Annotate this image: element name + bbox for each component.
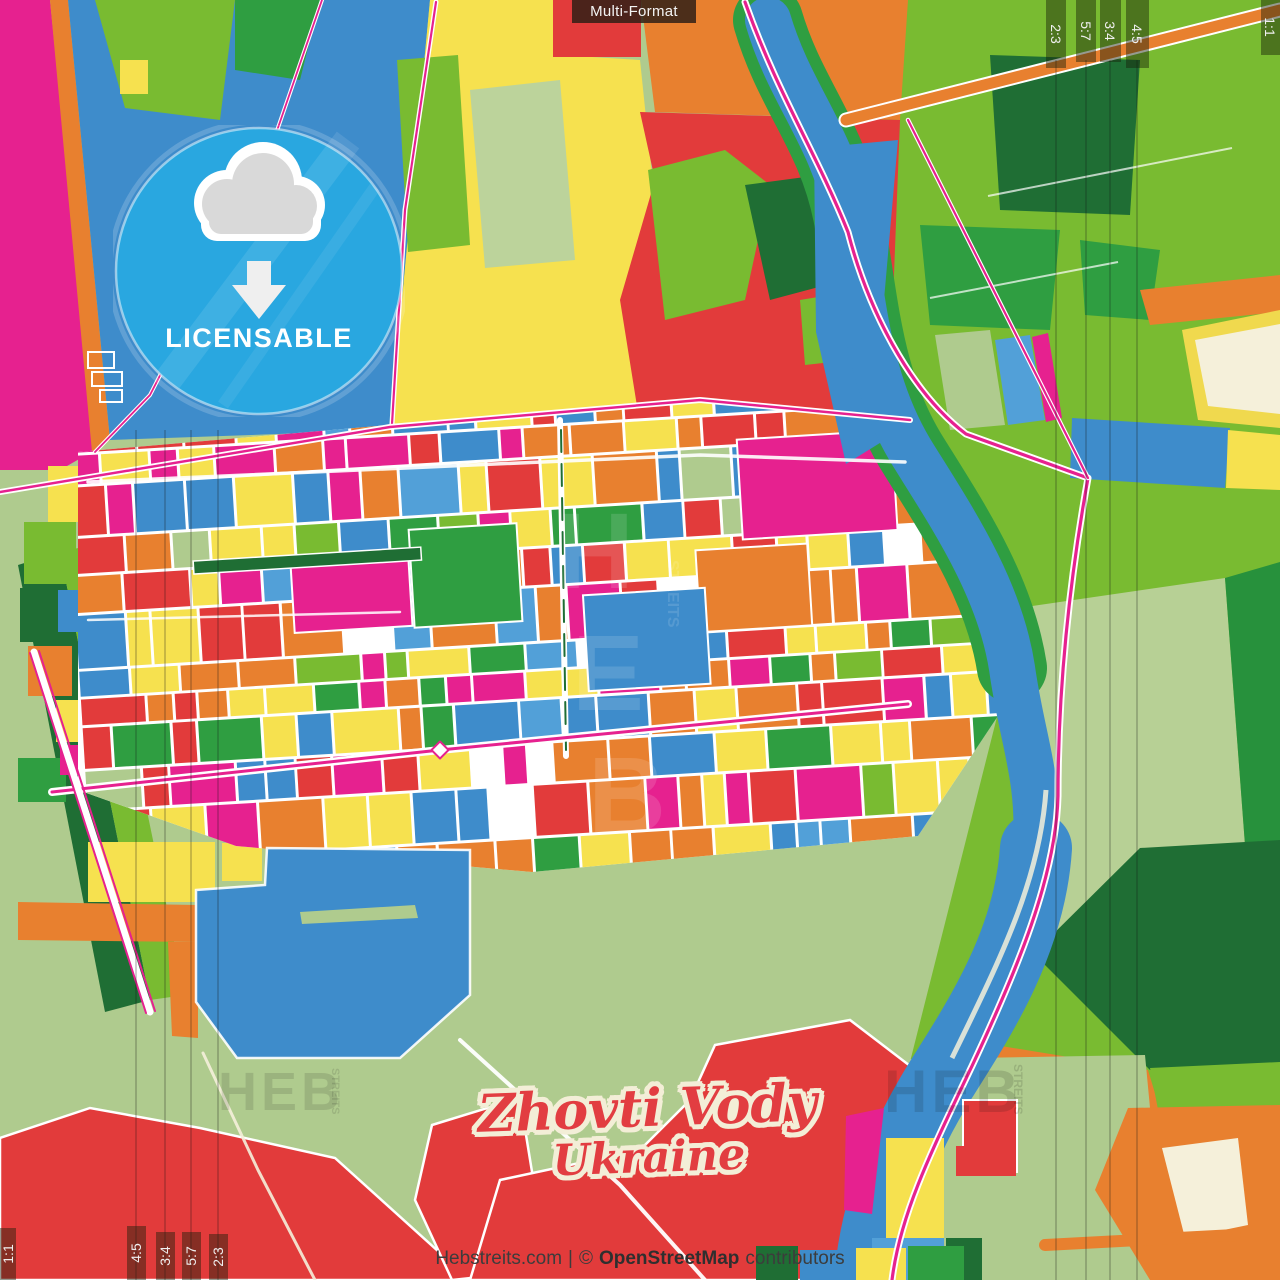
map-parcel [730, 658, 770, 686]
map-parcel [836, 651, 882, 679]
map-parcel [347, 436, 409, 468]
map-parcel [175, 693, 197, 720]
map-title: Zhovti Vody Ukraine [386, 1073, 909, 1190]
map-parcel [862, 764, 894, 816]
map-parcel [787, 627, 816, 654]
map-parcel [239, 659, 295, 687]
map-parcel [360, 681, 385, 708]
map-parcel [811, 654, 834, 681]
map-parcel [526, 670, 563, 698]
map-parcel [259, 799, 324, 853]
map-parcel [386, 652, 407, 678]
map-parcel [76, 613, 127, 669]
map-parcel [798, 683, 822, 725]
format-chip: Multi-Format [572, 0, 696, 23]
map-parcel [147, 694, 173, 721]
map-parcel [679, 776, 703, 827]
map-parcel [73, 574, 122, 613]
map-parcel [883, 647, 942, 676]
map-parcel [298, 713, 333, 756]
format-chip-label: Multi-Format [590, 3, 678, 20]
map-parcel [457, 789, 489, 841]
attribution-footer: Hebstreits.com | © OpenStreetMap contrib… [0, 1248, 1280, 1270]
map-parcel [324, 796, 369, 849]
watermark-letter: E [572, 612, 644, 733]
map-parcel [329, 470, 361, 520]
licensable-badge: LICENSABLE [113, 125, 405, 417]
map-parcel [891, 620, 930, 647]
map-parcel [107, 484, 134, 534]
map-parcel [199, 606, 243, 661]
map-parcel [823, 680, 883, 724]
map-parcel [534, 783, 590, 836]
map-parcel [728, 629, 785, 657]
map-parcel [131, 666, 179, 694]
watermark-letter: B [588, 734, 666, 855]
map-parcel [361, 468, 399, 518]
map-parcel [884, 677, 925, 720]
map-parcel [123, 570, 190, 610]
map-poster: HEB STREITS HEB STREITS HEBSTREITS 2:3 5… [0, 0, 1280, 1280]
map-parcel [243, 604, 282, 659]
map-parcel [324, 439, 345, 469]
map-parcel [625, 419, 677, 451]
map-parcel [460, 462, 488, 512]
map-parcel [198, 717, 262, 761]
map-parcel [198, 691, 227, 718]
map-parcel [362, 653, 384, 679]
map-parcel [134, 481, 186, 532]
footer-divider: | [568, 1248, 573, 1270]
map-parcel [71, 536, 125, 574]
map-parcel [503, 745, 527, 784]
map-parcel [684, 500, 721, 537]
watermark-subtext: STREITS [664, 560, 681, 628]
map-parcel [703, 774, 726, 825]
map-parcel [473, 673, 525, 702]
map-parcel [447, 676, 472, 703]
map-parcel [400, 708, 422, 750]
map-parcel [832, 568, 858, 622]
map-parcel [500, 429, 522, 459]
map-parcel [678, 418, 701, 448]
map-parcel [79, 669, 129, 697]
map-parcel [882, 722, 910, 762]
map-parcel [441, 430, 499, 462]
watermark-subtext: STREITS [329, 1068, 341, 1114]
map-parcel [571, 422, 624, 454]
map-parcel [83, 727, 112, 769]
map-parcel [526, 641, 577, 669]
osm-attribution: OpenStreetMap [599, 1248, 739, 1270]
badge-label: LICENSABLE [165, 323, 353, 353]
map-parcel [911, 718, 972, 760]
map-parcel [413, 791, 458, 844]
watermark-text: HEB [218, 1062, 344, 1122]
map-parcel [895, 761, 939, 814]
map-parcel [523, 548, 551, 585]
map-parcel [369, 793, 413, 845]
map-parcel [294, 472, 329, 522]
map-parcel [643, 502, 683, 539]
ratio-label-top: 5:7 [1078, 21, 1094, 41]
map-parcel [767, 726, 831, 768]
watermark-subtext: STREITS [1011, 1064, 1025, 1115]
map-parcel [399, 464, 459, 516]
contributors-label: contributors [745, 1248, 844, 1270]
map-parcel [186, 478, 235, 529]
watermark-letter: H [556, 490, 634, 611]
map-parcel [296, 655, 361, 684]
map-parcel [181, 662, 238, 690]
map-parcel [817, 624, 866, 652]
copyright-symbol: © [579, 1248, 593, 1270]
ratio-label-top: 3:4 [1102, 21, 1118, 41]
map-parcel [797, 766, 863, 820]
ratio-label-top: 2:3 [1048, 24, 1064, 44]
map-parcel [333, 709, 399, 754]
map-parcel [420, 677, 445, 704]
map-parcel [726, 773, 750, 824]
site-name: Hebstreits.com [435, 1248, 562, 1270]
map-parcel [487, 459, 541, 510]
map-parcel [263, 715, 297, 758]
map-parcel [266, 686, 313, 714]
map-parcel [235, 474, 294, 526]
map-parcel [716, 730, 767, 771]
map-parcel [858, 565, 909, 621]
map-parcel [229, 689, 264, 717]
map-parcel [832, 723, 881, 764]
map-parcel [771, 655, 810, 683]
licensable-badge-graphic: LICENSABLE [113, 125, 405, 417]
map-parcel [925, 675, 951, 717]
map-parcel [113, 723, 172, 767]
map-parcel [386, 679, 418, 707]
map-parcel [409, 648, 469, 677]
map-parcel [867, 622, 890, 648]
map-parcel [410, 434, 439, 464]
map-parcel [315, 683, 359, 711]
ratio-label-top: 4:5 [1129, 24, 1145, 44]
map-parcel [172, 721, 197, 763]
map-parcel [470, 645, 525, 673]
map-parcel [750, 770, 797, 823]
ratio-label-top-corner: 1:1 [1262, 17, 1278, 37]
